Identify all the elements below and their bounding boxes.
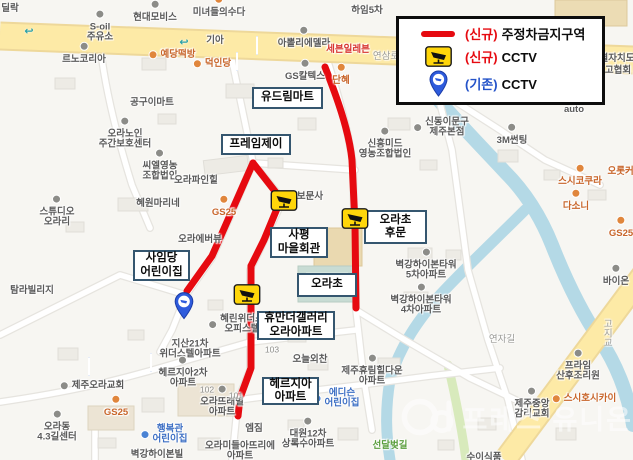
legend-prefix: (신규) xyxy=(465,50,498,65)
map-screenshot: 딜락현대모비스S-oil주유소르노코리아예당떡방미녀들의수다기아아뽈리에델라세븐… xyxy=(0,0,633,460)
legend-text: (기존)CCTV xyxy=(465,74,537,93)
legend: (신규)주정차금지구역 (신규)CCTV (기존)CCTV xyxy=(396,16,605,105)
cctv-existing-marker-icon xyxy=(173,292,195,325)
legend-label: CCTV xyxy=(502,77,537,92)
cctv-new-marker-icon xyxy=(342,208,369,234)
legend-row-cctv-old: (기존)CCTV xyxy=(419,70,596,97)
legend-row-no-parking: (신규)주정차금지구역 xyxy=(419,24,596,43)
cctv-new-marker-icon xyxy=(271,190,298,216)
legend-row-cctv-new: (신규)CCTV xyxy=(419,46,596,67)
cctv-old-icon xyxy=(419,70,457,97)
cctv-new-icon xyxy=(419,46,457,67)
legend-prefix: (신규) xyxy=(465,27,498,42)
legend-text: (신규)CCTV xyxy=(465,47,537,66)
legend-prefix: (기존) xyxy=(465,77,498,92)
legend-label: 주정차금지구역 xyxy=(502,27,586,42)
legend-text: (신규)주정차금지구역 xyxy=(465,24,585,43)
cctv-new-marker-icon xyxy=(234,284,261,310)
red-line-swatch xyxy=(419,31,457,37)
legend-label: CCTV xyxy=(502,50,537,65)
